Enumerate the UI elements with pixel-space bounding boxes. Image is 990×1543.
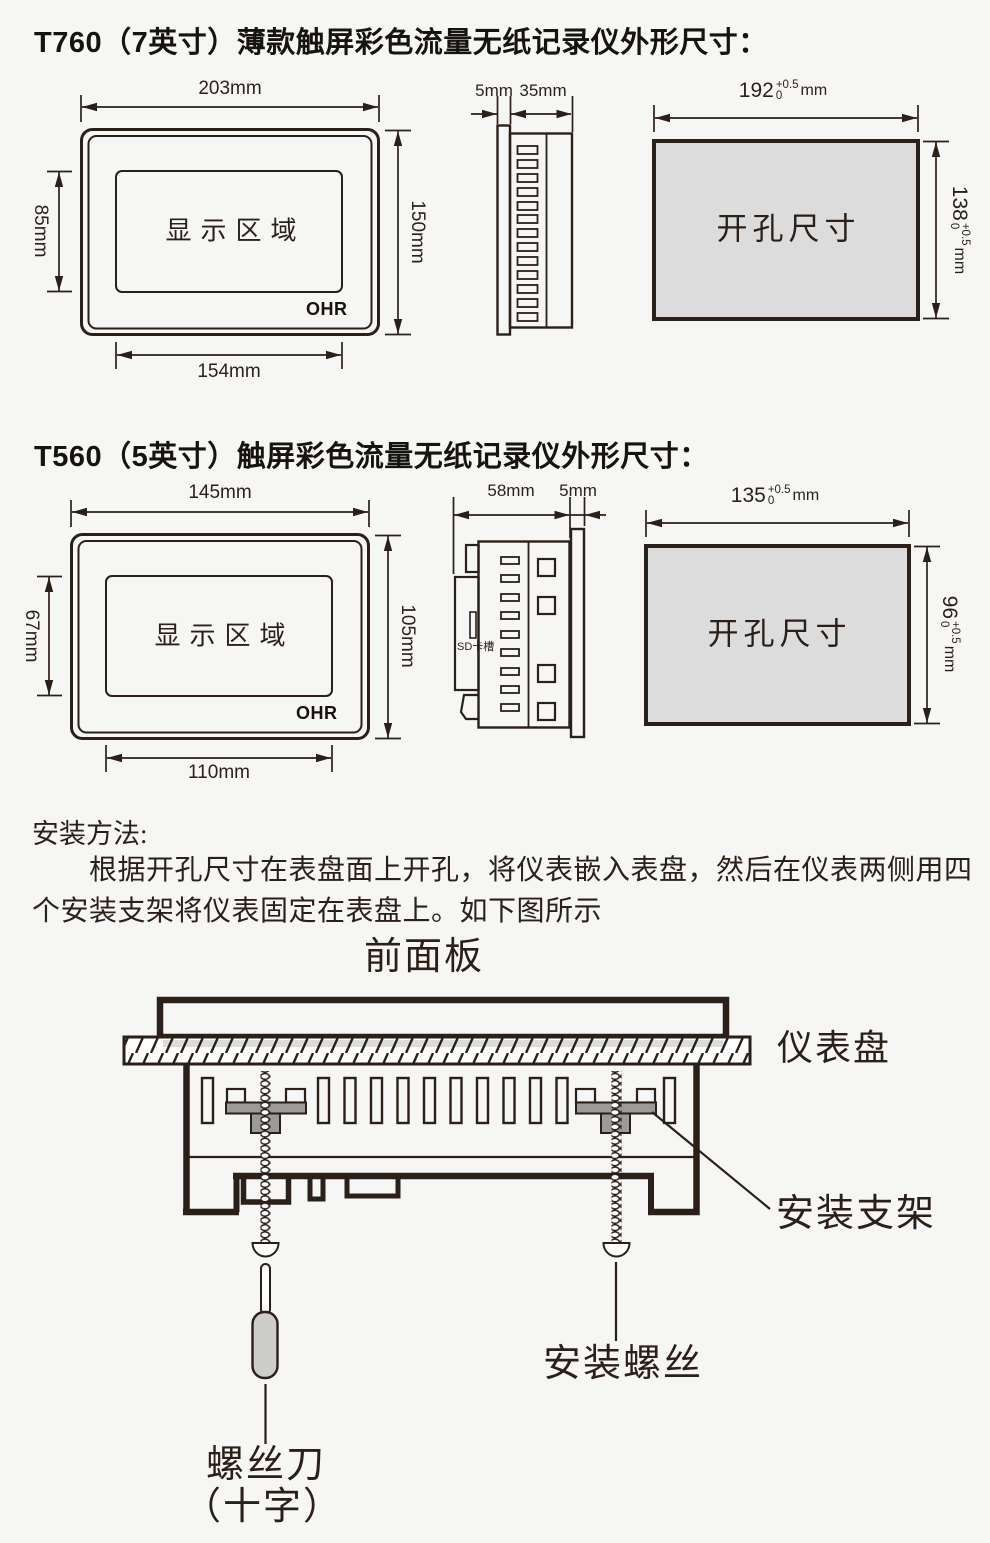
t760-cutout-width-unit: mm: [801, 83, 828, 100]
t560-terminal-holes: [538, 559, 555, 720]
mounting-bracket-label: 安装支架: [776, 1195, 936, 1235]
t560-cutout-height-tol-plus: +0.5: [949, 621, 960, 644]
t560-flange-dim: 5mm: [559, 482, 597, 500]
instrument-panel-label: 仪表盘: [777, 1030, 891, 1068]
t560-title: T560（5英寸）触屏彩色流量无纸记录仪外形尺寸：: [34, 442, 709, 472]
t760-ohr-logo: OHR: [306, 300, 348, 319]
t760-cutout-width-tol-minus: 0: [776, 91, 782, 102]
screwdriver-label: 螺丝刀: [206, 1446, 326, 1486]
t760-cutout-width-value: 192: [739, 80, 774, 102]
t760-cutout-label: 开孔尺寸: [712, 214, 861, 247]
t760-front-width-dim: 203mm: [198, 79, 261, 99]
t760-title: T760（7英寸）薄款触屏彩色流量无纸记录仪外形尺寸：: [34, 28, 768, 58]
install-heading: 安装方法:: [32, 820, 148, 848]
t760-display-label: 显示区域: [156, 217, 305, 244]
t760-depth-dim: 35mm: [519, 82, 566, 100]
t560-display-label: 显示区域: [145, 622, 294, 649]
install-paragraph-line1: 根据开孔尺寸在表盘面上开孔，将仪表嵌入表盘，然后在仪表两侧用四: [32, 856, 973, 885]
t760-cutout-height-value: 138: [948, 186, 970, 221]
t560-cutout-height-unit: mm: [941, 646, 958, 673]
t560-cutout-width-value: 135: [731, 485, 766, 507]
bracket-leader-line: [652, 1112, 770, 1209]
t560-connector-slots: [501, 557, 519, 711]
t560-cutout-height-tol-minus: 0: [938, 621, 949, 627]
screwdriver-shape: [253, 1264, 278, 1378]
t760-cutout-width-dim: 192+0.50mm: [739, 80, 827, 102]
t560-display-height-dim: 67mm: [21, 610, 41, 663]
t760-display-height-dim: 85mm: [30, 205, 50, 258]
install-paragraph-line2: 个安装支架将仪表固定在表盘上。如下图所示: [32, 897, 602, 926]
front-panel-label: 前面板: [364, 938, 484, 978]
t560-ohr-logo: OHR: [296, 704, 338, 723]
t560-front-height-dim: 105mm: [397, 604, 417, 667]
t560-cutout-height-dim: 96+0.50mm: [938, 596, 960, 673]
mounting-screw-left-shape: [261, 1071, 271, 1243]
mounting-screw-label: 安装螺丝: [543, 1345, 703, 1385]
mounting-screw-right-shape: [612, 1071, 622, 1243]
t760-cutout-height-unit: mm: [951, 248, 968, 275]
t760-connector-slots: [518, 146, 538, 321]
t560-cutout-height-value: 96: [938, 596, 960, 619]
t560-sd-slot: [470, 612, 476, 638]
screwdriver-type-label: （十字）: [183, 1488, 343, 1528]
t760-cutout-height-dim: 138+0.50mm: [948, 186, 970, 274]
front-panel-shape: [160, 1000, 726, 1037]
t560-depth-dim: 58mm: [487, 482, 534, 500]
t560-cutout-width-tol-minus: 0: [768, 496, 774, 507]
t760-display-width-dim: 154mm: [197, 362, 260, 382]
t560-side-view: [454, 497, 607, 737]
t760-cutout-height-tol-plus: +0.5: [959, 223, 970, 246]
t560-sd-slot-label: SD卡槽: [457, 642, 494, 654]
t760-side-view: [471, 96, 573, 335]
t760-flange-dim: 5mm: [475, 82, 513, 100]
t560-front-width-dim: 145mm: [188, 483, 251, 503]
t560-cutout-label: 开孔尺寸: [703, 619, 852, 652]
t560-cutout-width-dim: 135+0.50mm: [731, 485, 819, 507]
t560-display-width-dim: 110mm: [188, 763, 250, 783]
manual-page: T760（7英寸）薄款触屏彩色流量无纸记录仪外形尺寸： 203mm 85mm 1…: [0, 0, 990, 1543]
t760-front-height-dim: 150mm: [407, 200, 427, 263]
instrument-panel-shape: [124, 1037, 750, 1064]
t560-cutout-width-unit: mm: [793, 488, 820, 505]
t760-cutout-height-tol-minus: 0: [948, 223, 959, 229]
